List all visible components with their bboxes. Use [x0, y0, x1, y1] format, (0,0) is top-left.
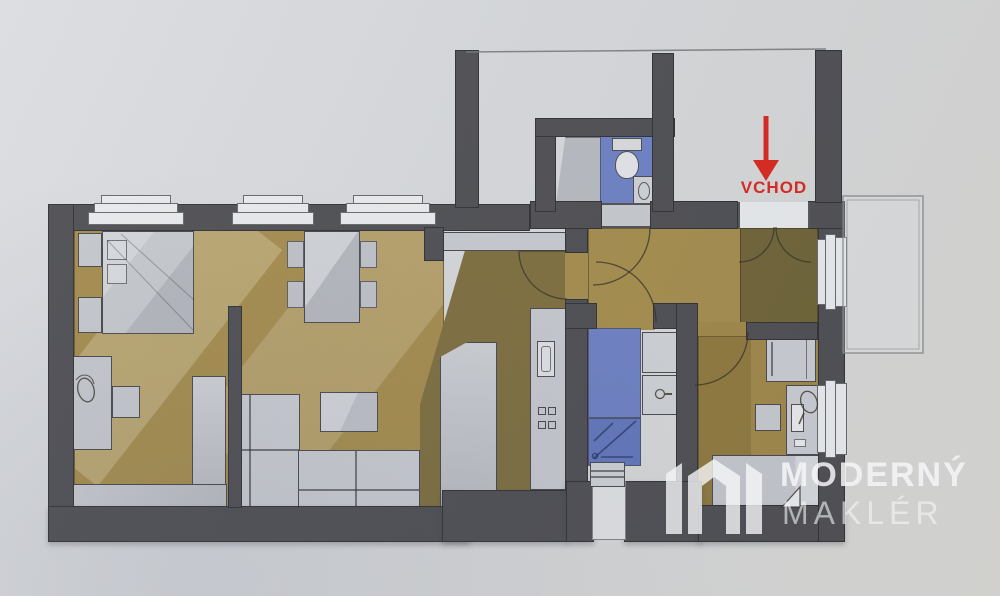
- balcony-outline: [843, 196, 923, 353]
- desk-lamp-icon: [799, 413, 804, 424]
- door-arc-bedroom2: [695, 332, 748, 385]
- bathroom-tap-icon: [656, 390, 665, 399]
- door-arc-entrance: [739, 227, 774, 262]
- shower-lines: [594, 421, 636, 458]
- entrance-arrow: [753, 116, 779, 181]
- door-arc-bathroom: [596, 262, 656, 322]
- brand-logo-icon: [662, 446, 766, 536]
- brand-name-line1: MODERNÝ: [780, 456, 968, 495]
- entrance-label: VCHOD: [726, 178, 822, 198]
- corridor-line: [466, 49, 826, 52]
- door-arc-kitchen: [519, 251, 567, 299]
- door-arc-wc: [593, 228, 650, 285]
- brand-name-line2: MAKLÉR: [782, 495, 944, 532]
- bed-fold-line: [107, 234, 194, 330]
- desk-chair-icon: [75, 376, 97, 403]
- door-arc-entrance: [776, 227, 811, 262]
- floor-plan-photo: VCHOD MODERNÝ MAKLÉR: [0, 0, 1000, 596]
- desk-lamp-icon: [798, 389, 821, 415]
